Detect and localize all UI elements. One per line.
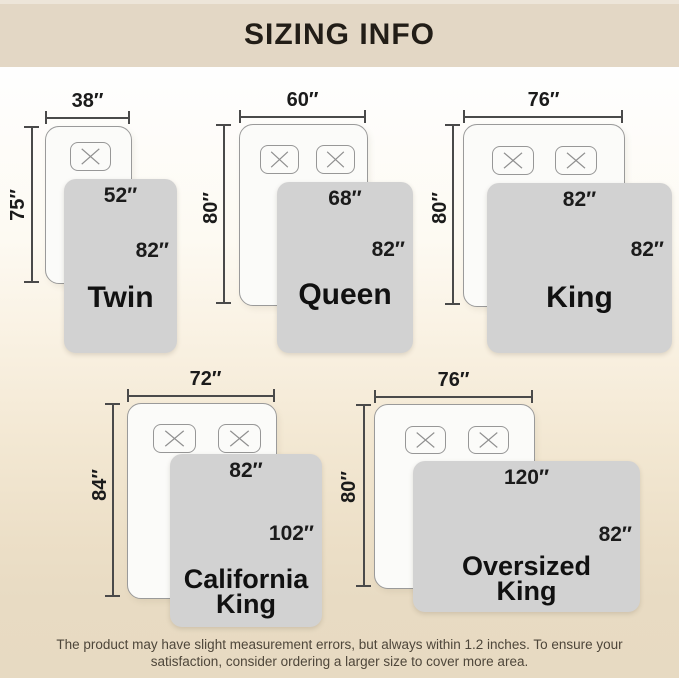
bed-length-label: 80″ xyxy=(199,178,223,238)
blanket-king: 82″ 82″ King xyxy=(487,183,672,353)
size-name-label: Twin xyxy=(64,283,177,313)
size-name-line1: Queen xyxy=(277,280,413,310)
pillow-x-icon xyxy=(469,427,508,453)
pillow xyxy=(70,142,111,171)
bed-width-label: 72″ xyxy=(175,368,236,391)
pillow-x-icon xyxy=(219,425,260,452)
size-name-label: Queen xyxy=(277,280,413,310)
header-bar: SIZING INFO xyxy=(0,0,679,67)
size-name-line2: King xyxy=(413,579,640,604)
blanket-length-label: 82″ xyxy=(599,523,632,547)
bed-width-label: 60″ xyxy=(272,89,333,112)
blanket-length-label: 82″ xyxy=(631,238,664,262)
blanket-queen: 68″ 82″ Queen xyxy=(277,182,413,353)
pillow xyxy=(468,426,509,454)
bed-length-label: 84″ xyxy=(88,455,112,515)
blanket-california-king: 82″ 102″ CaliforniaKing xyxy=(170,454,322,627)
size-name-line2: King xyxy=(170,592,322,617)
pillow-x-icon xyxy=(261,146,298,173)
pillow-x-icon xyxy=(71,143,110,170)
blanket-width-label: 82″ xyxy=(487,188,672,212)
size-name-label: OversizedKing xyxy=(413,554,640,604)
pillow xyxy=(260,145,299,174)
pillow-x-icon xyxy=(154,425,195,452)
bed-width-label: 38″ xyxy=(57,90,118,113)
pillow-x-icon xyxy=(317,146,354,173)
pillow-x-icon xyxy=(493,147,533,174)
pillow xyxy=(492,146,534,175)
disclaimer-line1: The product may have slight measurement … xyxy=(0,636,679,653)
disclaimer-text: The product may have slight measurement … xyxy=(0,636,679,670)
pillow-x-icon xyxy=(556,147,596,174)
size-name-line1: King xyxy=(487,283,672,313)
blanket-width-label: 52″ xyxy=(64,184,177,208)
blanket-width-label: 68″ xyxy=(277,187,413,211)
size-name-label: King xyxy=(487,283,672,313)
sizing-info-page: SIZING INFO 38″ 75″ 52″ 82″ Twin 60″ 80″ xyxy=(0,0,679,678)
bed-length-label: 80″ xyxy=(428,178,452,238)
size-name-label: CaliforniaKing xyxy=(170,567,322,617)
pillow xyxy=(316,145,355,174)
blanket-width-label: 120″ xyxy=(413,466,640,490)
pillow-x-icon xyxy=(406,427,445,453)
blanket-oversized-king: 120″ 82″ OversizedKing xyxy=(413,461,640,612)
pillow xyxy=(218,424,261,453)
size-name-line1: Twin xyxy=(64,283,177,313)
blanket-length-label: 102″ xyxy=(269,522,314,546)
pillow xyxy=(555,146,597,175)
pillow xyxy=(405,426,446,454)
blanket-twin: 52″ 82″ Twin xyxy=(64,179,177,353)
disclaimer-line2: satisfaction, consider ordering a larger… xyxy=(0,653,679,670)
blanket-width-label: 82″ xyxy=(170,459,322,483)
bed-length-label: 80″ xyxy=(337,457,361,517)
blanket-length-label: 82″ xyxy=(372,238,405,262)
blanket-length-label: 82″ xyxy=(136,239,169,263)
bed-width-label: 76″ xyxy=(423,369,484,392)
pillow xyxy=(153,424,196,453)
bed-length-label: 75″ xyxy=(6,175,30,235)
bed-width-label: 76″ xyxy=(513,89,574,112)
page-title: SIZING INFO xyxy=(244,15,435,52)
